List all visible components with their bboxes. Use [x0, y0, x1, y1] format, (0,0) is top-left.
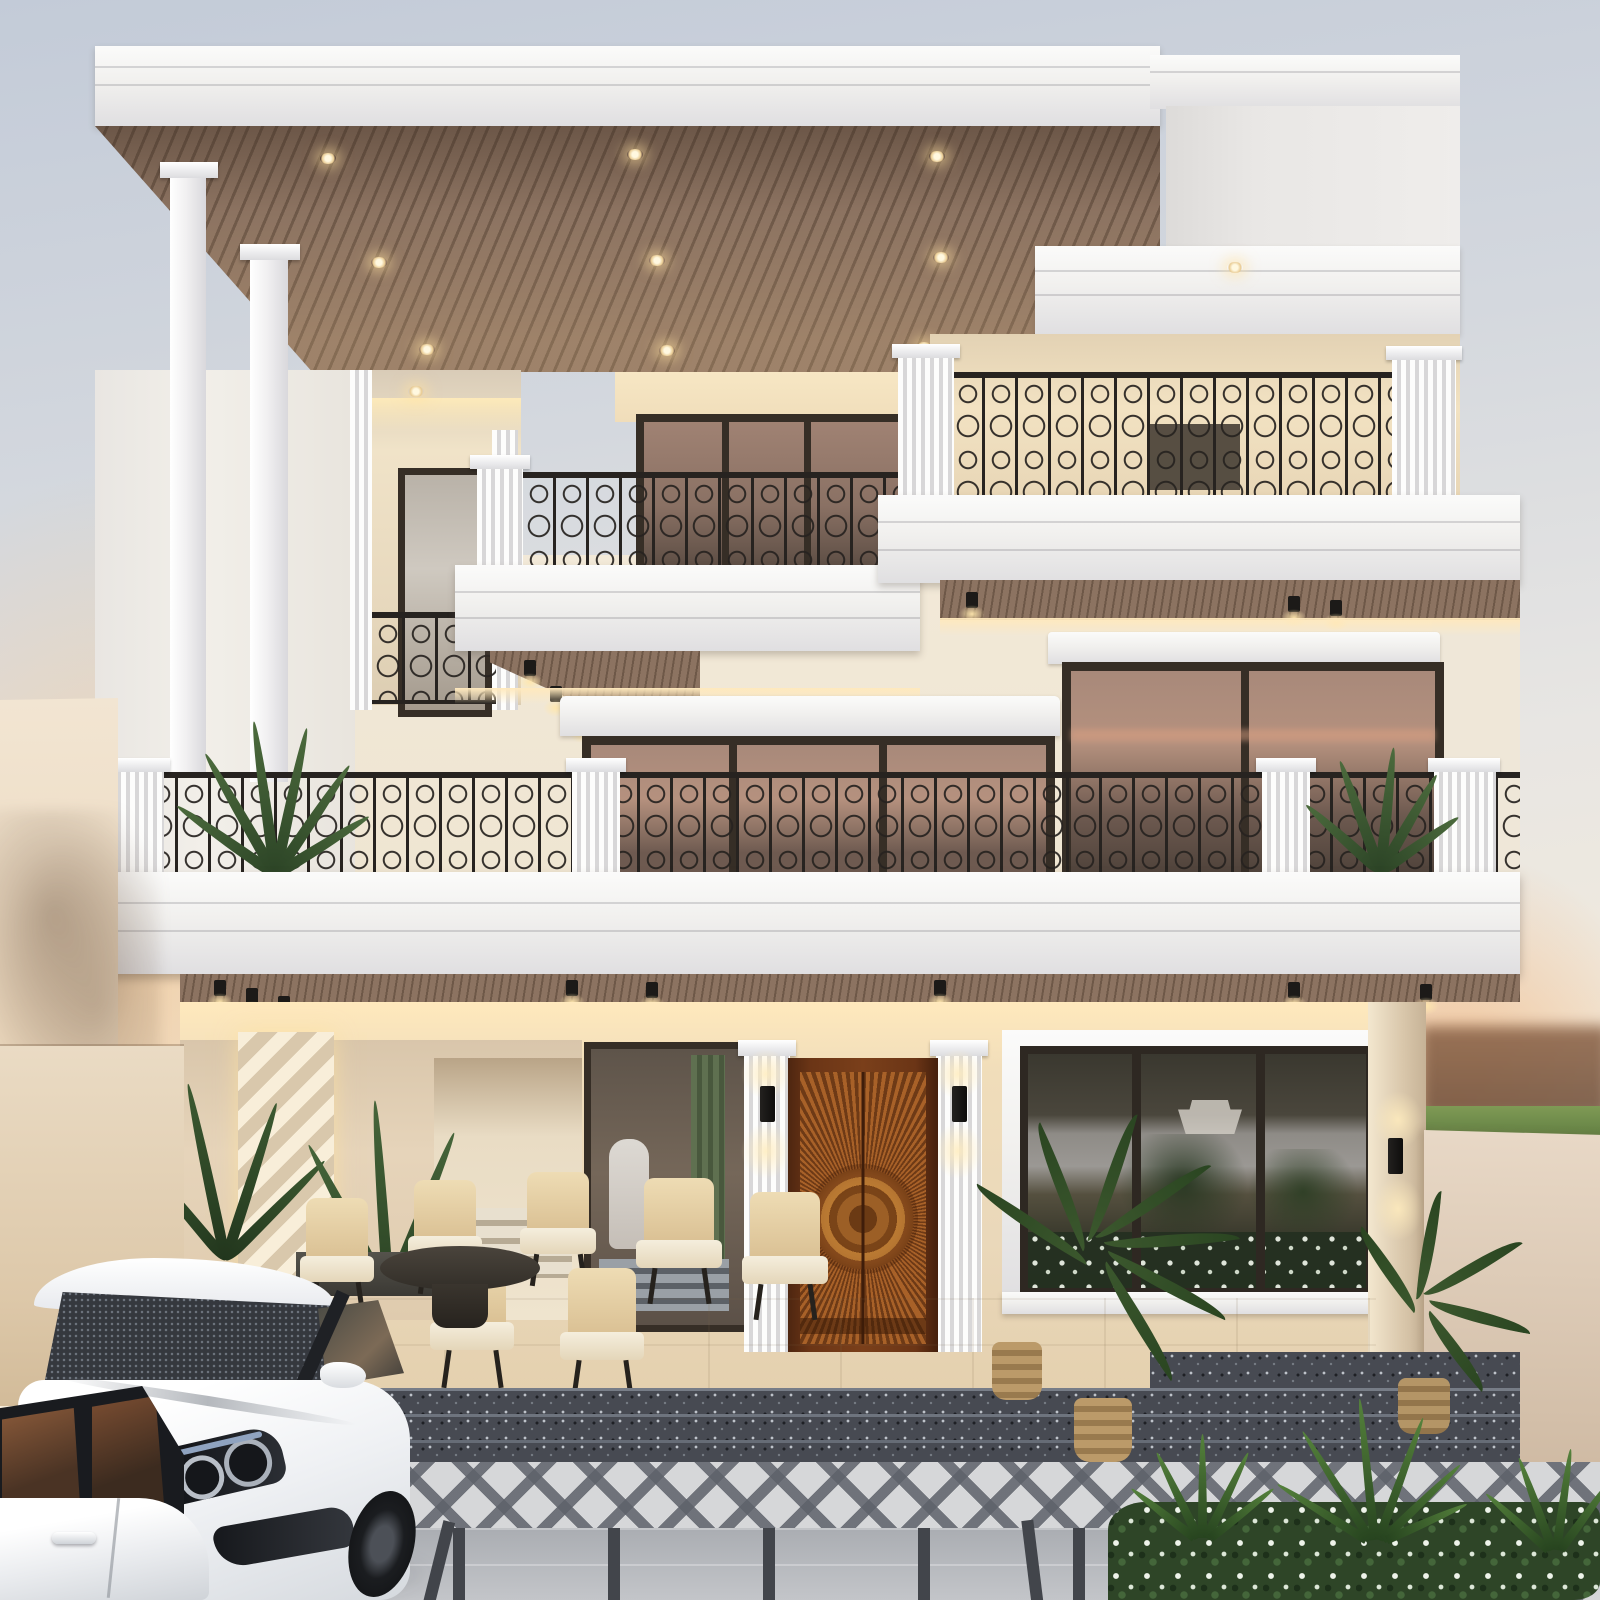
pendant-downlight [966, 592, 978, 608]
fascia-groove [1035, 294, 1460, 296]
recessed-light [627, 149, 643, 160]
fascia-groove [455, 617, 920, 619]
pendant-downlight [214, 980, 226, 996]
column-capital [240, 244, 300, 260]
right-fascia-band [1035, 246, 1460, 334]
sconce-glow-down [740, 1122, 792, 1180]
bay-pilaster [350, 370, 372, 710]
wall-sconce [1388, 1138, 1403, 1174]
pendant-downlight [566, 980, 578, 996]
pendant-downlight [524, 660, 536, 676]
balcony-plant [1320, 742, 1430, 872]
right2-soffit-strip [940, 580, 1520, 620]
pendant-downlight [1288, 982, 1300, 998]
car-second [0, 1386, 209, 1600]
recessed-light [419, 344, 435, 355]
spiky-plant [1500, 1430, 1600, 1550]
pendant-downlight [934, 980, 946, 996]
recessed-light [1227, 262, 1243, 273]
main-balcony-base [104, 872, 1520, 974]
porch-soffit-strip [180, 974, 1520, 1002]
recessed-light [929, 151, 945, 162]
horizon-trees [1420, 1026, 1600, 1118]
patio-chair [742, 1192, 828, 1320]
wall-sconce [952, 1086, 967, 1122]
roof-cornice [95, 46, 1160, 126]
fascia-groove [878, 549, 1520, 551]
center2-pediment [560, 696, 1060, 736]
base-groove [104, 930, 1520, 932]
balcony-pillar-cap [892, 344, 960, 358]
car2-body [0, 1498, 209, 1600]
bay-cove-glow [363, 398, 521, 432]
balcony-pillar [1392, 360, 1456, 500]
wicker-basket [1074, 1398, 1132, 1462]
porch-column [170, 178, 206, 778]
pendant-downlight [1420, 984, 1432, 1000]
recessed-light [320, 153, 336, 164]
recessed-light [371, 257, 387, 268]
balcony-pillar [898, 358, 954, 498]
roof-cornice-groove [95, 84, 1160, 86]
recessed-light [649, 255, 665, 266]
right-balcony-fascia [878, 495, 1520, 583]
pendant-downlight [1288, 596, 1300, 612]
balcony-pillar [1262, 772, 1310, 876]
tree-shadow [0, 810, 160, 1070]
car-mirror [320, 1362, 366, 1388]
car2-glasshouse [0, 1386, 184, 1514]
third-floor-right-railing [952, 372, 1396, 500]
right-parapet-face [1166, 106, 1460, 248]
wicker-basket [992, 1342, 1042, 1400]
base-groove [104, 902, 1520, 904]
villa-exterior-rendering [0, 0, 1600, 1600]
pendant-downlight [646, 982, 658, 998]
recessed-light [659, 345, 675, 356]
spiky-plant [1140, 1418, 1260, 1538]
reflected-parapet [1178, 1100, 1242, 1134]
center-balcony-fascia [455, 565, 920, 651]
balcony-pillar [572, 772, 620, 876]
third-floor-center-railing [523, 472, 913, 578]
sunset-reflection [1071, 729, 1435, 741]
balcony-plant [205, 700, 335, 875]
fascia-groove [878, 521, 1520, 523]
fascia-groove [455, 591, 920, 593]
balcony-pillar-cap [1386, 346, 1462, 360]
patio-chair [560, 1268, 644, 1398]
balcony-pillar-cap [1428, 758, 1500, 772]
recessed-light [933, 252, 949, 263]
right-parapet-cap [1150, 55, 1460, 109]
spiky-plant [1300, 1380, 1450, 1540]
balcony-pillar-cap [470, 455, 530, 469]
niche-ceiling-light [408, 386, 424, 397]
wall-sconce [760, 1086, 775, 1122]
roof-cornice-groove [95, 66, 1160, 68]
potted-palm [940, 1130, 1270, 1460]
balcony-pillar-cap [566, 758, 626, 772]
car2-door-handle [52, 1532, 96, 1544]
parapet-groove [1150, 71, 1460, 73]
column-capital [160, 162, 218, 178]
fascia-groove [1035, 270, 1460, 272]
balcony-pillar [477, 469, 523, 574]
pendant-downlight [1330, 600, 1342, 616]
patio-chair [636, 1178, 722, 1304]
right2-pediment [1048, 632, 1440, 664]
balcony-pillar-cap [1256, 758, 1316, 772]
